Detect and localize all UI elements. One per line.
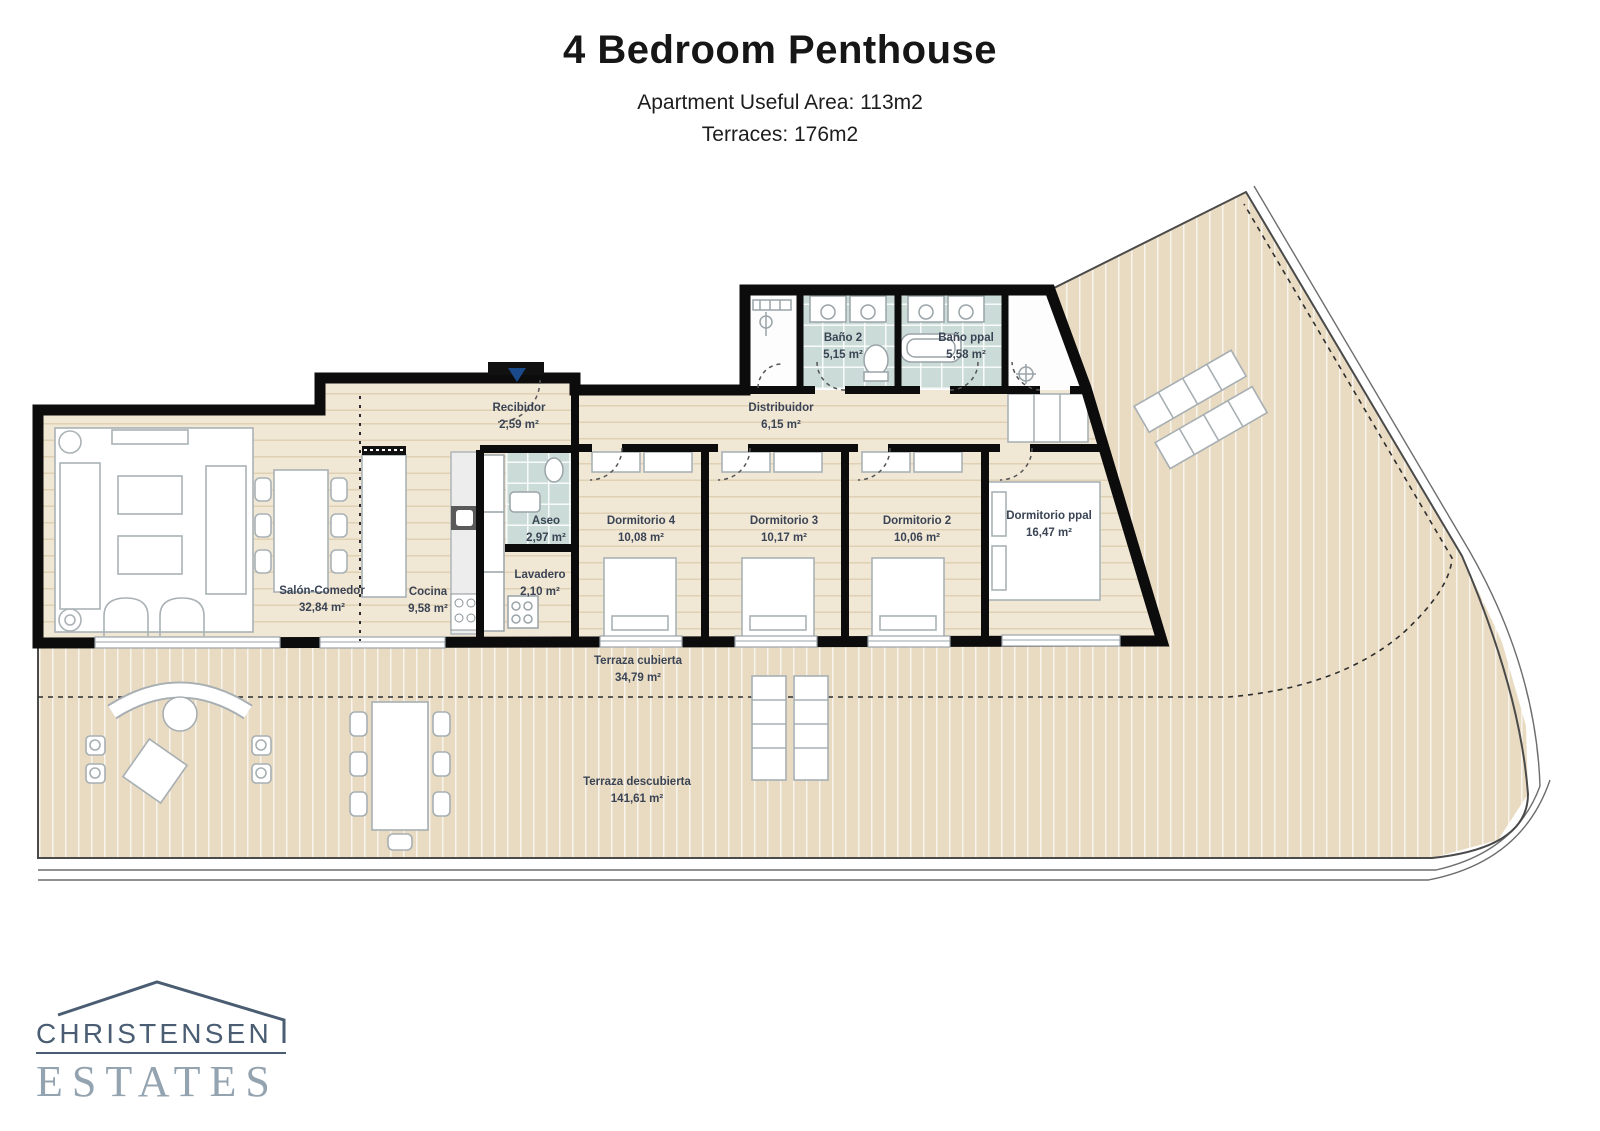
- room-label-recibidor: Recibidor2,59 m²: [492, 400, 545, 435]
- plan-linework: [0, 0, 1600, 1131]
- room-label-aseo: Aseo2,97 m²: [526, 513, 566, 548]
- room-label-dormitorio-2: Dormitorio 210,06 m²: [883, 513, 951, 548]
- room-label-salon-comedor: Salón-Comedor32,84 m²: [279, 583, 365, 618]
- room-label-dormitorio-ppal: Dormitorio ppal16,47 m²: [1006, 508, 1092, 543]
- room-label-lavadero: Lavadero2,10 m²: [514, 567, 565, 602]
- logo-name: CHRISTENSEN: [36, 1018, 288, 1050]
- room-label-dormitorio-3: Dormitorio 310,17 m²: [750, 513, 818, 548]
- room-label-bano-2: Baño 25,15 m²: [823, 330, 863, 365]
- room-label-distribuidor: Distribuidor6,15 m²: [748, 400, 813, 435]
- logo-divider: [36, 1052, 286, 1054]
- room-label-bano-ppal: Baño ppal5,58 m²: [938, 330, 994, 365]
- room-label-terraza-descubierta: Terraza descubierta141,61 m²: [583, 774, 691, 809]
- room-label-cocina: Cocina9,58 m²: [408, 584, 448, 619]
- floorplan-flyer: 4 Bedroom Penthouse Apartment Useful Are…: [0, 0, 1600, 1131]
- logo-estates: ESTATES: [36, 1056, 279, 1107]
- room-label-dormitorio-4: Dormitorio 410,08 m²: [607, 513, 675, 548]
- room-label-terraza-cubierta: Terraza cubierta34,79 m²: [594, 653, 682, 688]
